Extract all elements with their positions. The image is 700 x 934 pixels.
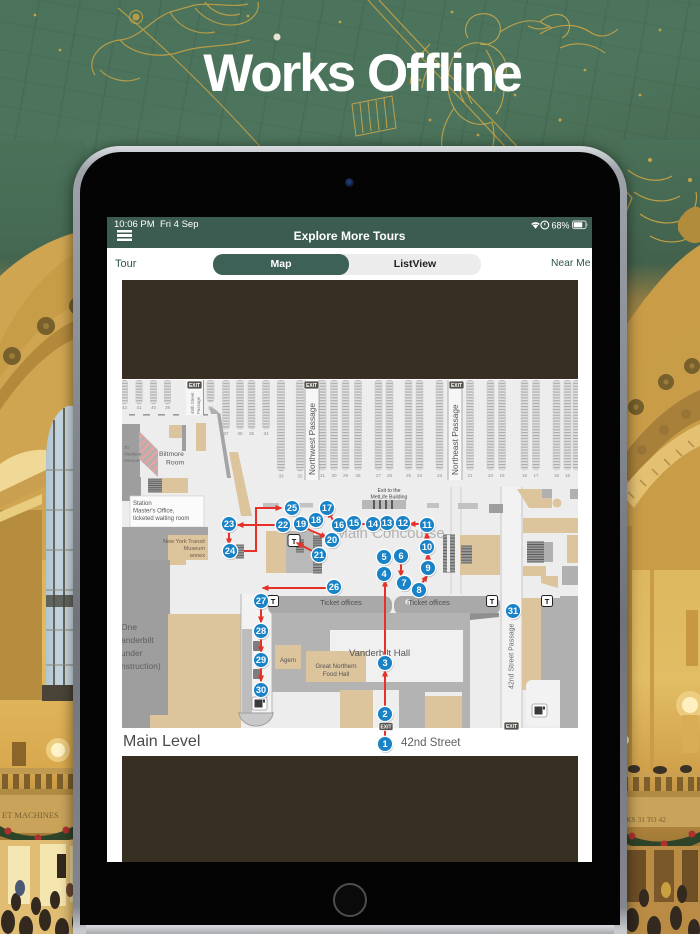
svg-text:18: 18 [522, 473, 528, 478]
svg-text:6: 6 [398, 551, 403, 561]
svg-text:18: 18 [311, 515, 321, 525]
svg-text:36: 36 [237, 431, 243, 436]
svg-text:19: 19 [296, 519, 306, 529]
svg-text:Station: Station [133, 501, 152, 507]
svg-text:EXIT: EXIT [506, 724, 517, 730]
svg-text:(under: (under [122, 648, 143, 658]
svg-text:Food Hall: Food Hall [323, 671, 349, 678]
svg-text:31: 31 [320, 473, 326, 478]
svg-text:26: 26 [387, 473, 393, 478]
svg-text:EXIT: EXIT [380, 725, 391, 731]
svg-text:39: 39 [165, 405, 171, 410]
svg-text:28: 28 [256, 626, 266, 636]
svg-text:construction): construction) [122, 661, 161, 671]
svg-text:24: 24 [225, 546, 236, 556]
svg-text:14: 14 [368, 519, 379, 529]
svg-text:27: 27 [256, 596, 266, 606]
svg-text:2: 2 [382, 709, 387, 719]
svg-text:28: 28 [355, 473, 361, 478]
svg-text:To: To [124, 445, 129, 450]
svg-text:5: 5 [381, 552, 386, 562]
svg-text:15: 15 [349, 518, 359, 528]
svg-text:Northeast Passage: Northeast Passage [450, 404, 460, 475]
svg-text:16: 16 [334, 520, 344, 530]
svg-text:Biltmore: Biltmore [159, 451, 184, 458]
svg-text:annex: annex [190, 553, 205, 559]
svg-text:15: 15 [565, 473, 571, 478]
svg-text:20: 20 [488, 473, 494, 478]
svg-text:Exit to the: Exit to the [377, 488, 400, 494]
svg-text:8: 8 [416, 585, 421, 595]
svg-text:33: 33 [278, 474, 284, 479]
svg-text:EXIT: EXIT [306, 383, 317, 389]
svg-text:37: 37 [223, 431, 229, 436]
svg-text:EXIT: EXIT [451, 383, 462, 389]
svg-text:T: T [271, 597, 276, 606]
svg-text:13: 13 [382, 518, 392, 528]
svg-text:4: 4 [381, 569, 387, 579]
svg-text:New York Transit: New York Transit [163, 539, 205, 545]
svg-text:42: 42 [122, 405, 127, 410]
svg-text:25: 25 [287, 503, 297, 513]
svg-text:9: 9 [425, 563, 430, 573]
svg-text:24: 24 [417, 473, 423, 478]
svg-text:32: 32 [297, 474, 303, 479]
svg-text:31: 31 [508, 606, 518, 616]
svg-text:EXIT: EXIT [189, 383, 200, 389]
svg-text:30: 30 [331, 473, 337, 478]
svg-text:25: 25 [406, 473, 412, 478]
svg-text:One: One [122, 622, 137, 632]
svg-text:ET MACHINES: ET MACHINES [2, 810, 59, 820]
svg-text:Agern: Agern [280, 658, 296, 664]
svg-text:10: 10 [422, 542, 432, 552]
svg-text:29: 29 [343, 473, 349, 478]
svg-text:Ticket offices: Ticket offices [408, 598, 450, 607]
svg-text:17: 17 [533, 473, 539, 478]
svg-text:45th Street: 45th Street [190, 392, 195, 414]
svg-text:21: 21 [467, 473, 473, 478]
svg-text:Avenue: Avenue [124, 458, 140, 463]
svg-text:Passage: Passage [196, 396, 201, 414]
svg-text:21: 21 [314, 550, 324, 560]
svg-text:1: 1 [382, 739, 387, 749]
svg-text:Ticket offices: Ticket offices [320, 598, 362, 607]
svg-text:12: 12 [398, 518, 408, 528]
svg-text:17: 17 [322, 503, 332, 513]
svg-text:29: 29 [256, 655, 266, 665]
svg-text:41: 41 [136, 405, 142, 410]
svg-text:16: 16 [554, 473, 560, 478]
svg-text:Master's Office,: Master's Office, [133, 509, 175, 515]
svg-text:Vanderbilt: Vanderbilt [122, 635, 154, 645]
svg-text:KS 31 TO 42: KS 31 TO 42 [626, 815, 666, 824]
svg-text:Room: Room [166, 460, 184, 467]
svg-text:42nd Street Passage: 42nd Street Passage [509, 624, 516, 689]
svg-text:40: 40 [151, 405, 157, 410]
svg-text:T: T [490, 597, 495, 606]
svg-text:7: 7 [401, 578, 406, 588]
svg-text:ticketed waiting room: ticketed waiting room [133, 516, 189, 522]
svg-text:20: 20 [327, 535, 337, 545]
svg-text:T: T [545, 597, 550, 606]
svg-text:Northwest Passage: Northwest Passage [307, 403, 317, 475]
svg-text:Madison: Madison [124, 452, 142, 457]
svg-text:22: 22 [278, 520, 288, 530]
svg-text:27: 27 [376, 473, 382, 478]
svg-text:3: 3 [382, 658, 387, 668]
svg-text:30: 30 [256, 685, 266, 695]
svg-text:23: 23 [224, 519, 234, 529]
svg-text:MetLife Building: MetLife Building [371, 495, 408, 501]
svg-text:T: T [292, 537, 297, 546]
svg-text:Great Northern: Great Northern [315, 663, 357, 670]
svg-text:11: 11 [422, 520, 432, 530]
svg-text:23: 23 [437, 473, 443, 478]
svg-text:35: 35 [249, 431, 255, 436]
svg-text:19: 19 [499, 473, 505, 478]
svg-text:26: 26 [329, 582, 339, 592]
svg-text:Museum: Museum [184, 546, 206, 552]
svg-text:34: 34 [263, 431, 269, 436]
